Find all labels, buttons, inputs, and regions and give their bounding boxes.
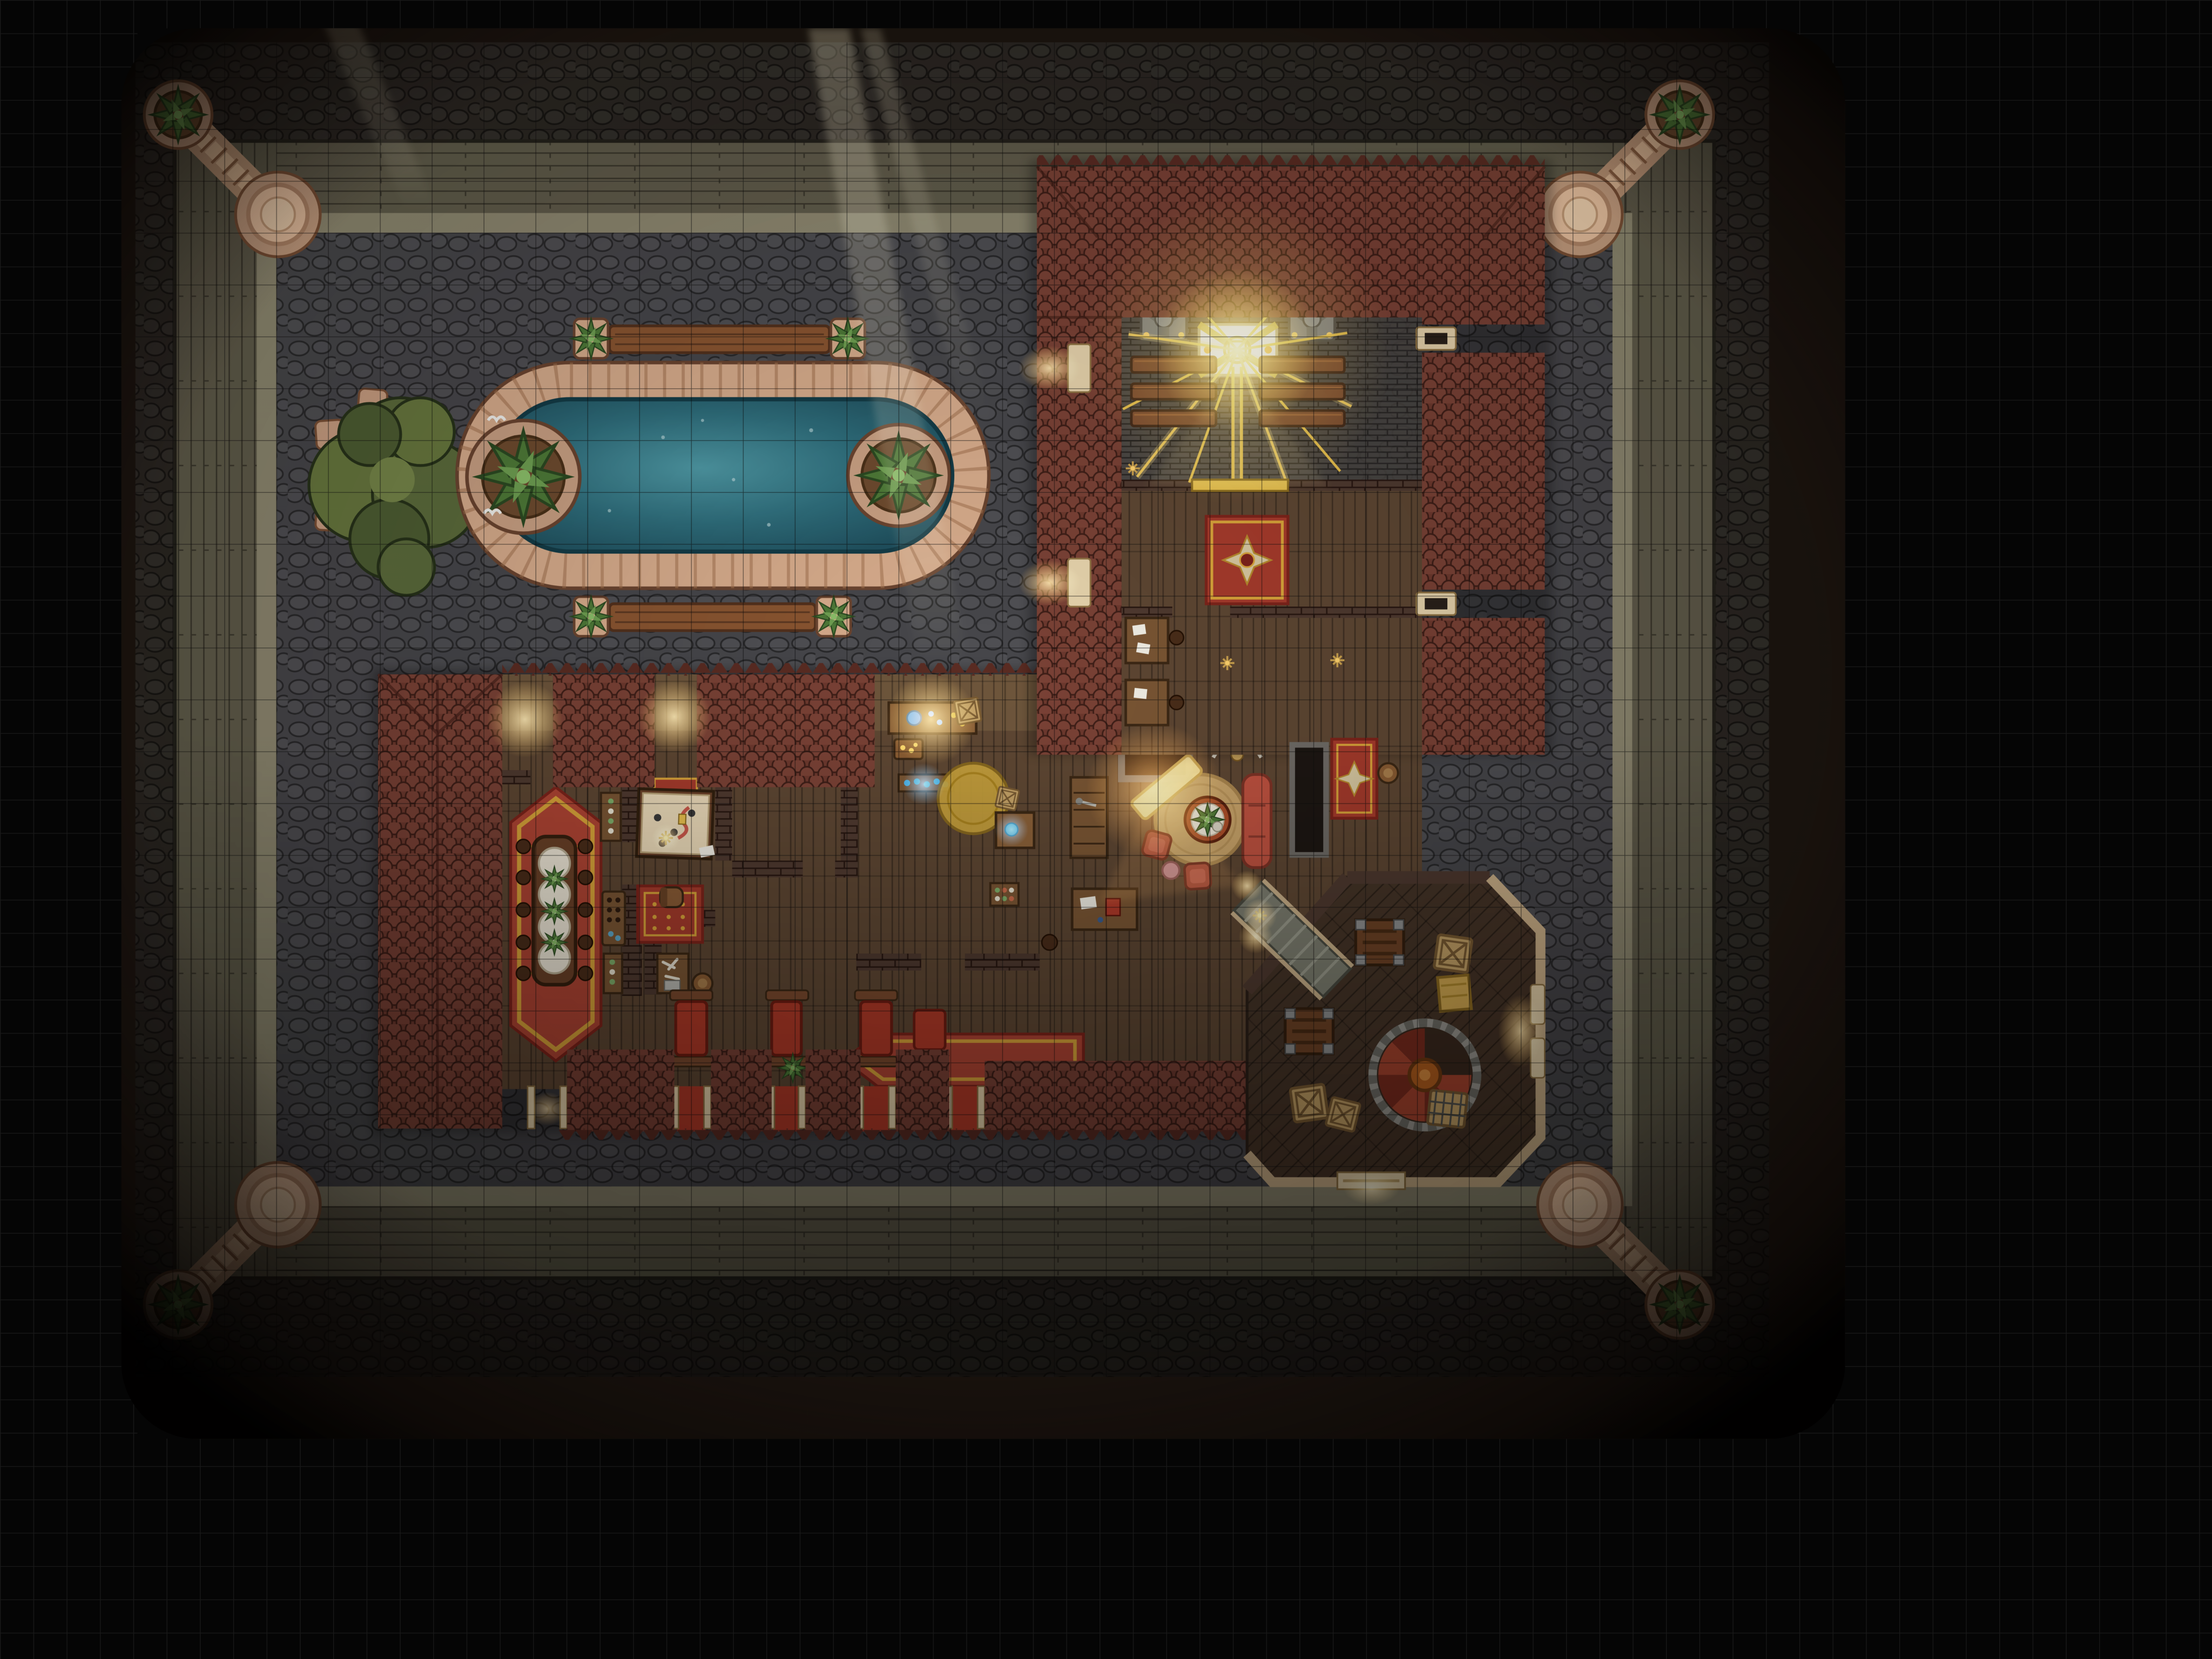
battle-map-canvas[interactable] [0,0,2212,1659]
vignette [122,28,1845,1439]
map-plate [122,0,1845,1439]
vtt-stage [0,0,2212,1659]
